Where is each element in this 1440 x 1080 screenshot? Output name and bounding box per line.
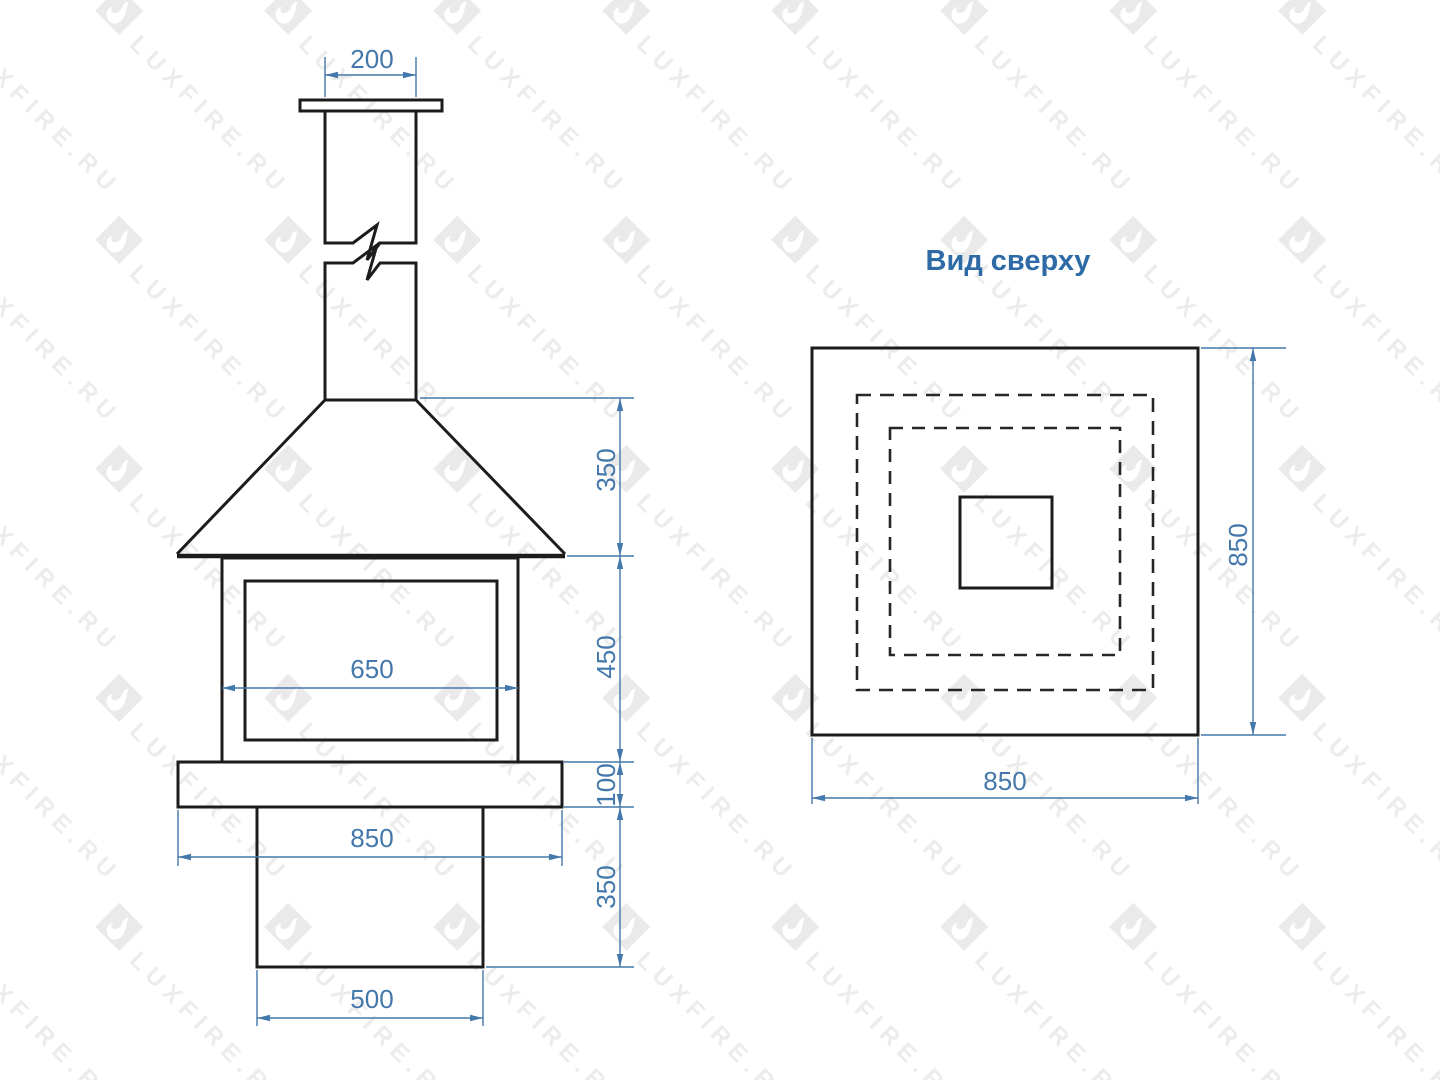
watermark-text: LUXFIRE.RU xyxy=(124,260,294,430)
flame-diamond-icon xyxy=(433,445,481,493)
watermark-text: LUXFIRE.RU xyxy=(0,260,126,430)
dimension-arrow xyxy=(617,749,623,762)
flame-diamond-icon xyxy=(433,903,481,951)
watermark-text: LUXFIRE.RU xyxy=(293,718,463,888)
watermark-tile: LUXFIRE.RU xyxy=(597,0,811,201)
flame-diamond-icon xyxy=(95,445,143,493)
watermark-text: LUXFIRE.RU xyxy=(462,489,632,659)
watermark-text: LUXFIRE.RU xyxy=(0,489,126,659)
watermark-tile: LUXFIRE.RU xyxy=(1273,445,1440,659)
watermark-text: LUXFIRE.RU xyxy=(969,31,1139,201)
watermark-text: LUXFIRE.RU xyxy=(1307,489,1440,659)
flame-diamond-icon xyxy=(1109,445,1157,493)
dim-hood-height: 350 xyxy=(591,448,621,491)
watermark-text: LUXFIRE.RU xyxy=(0,31,126,201)
dimension-arrow xyxy=(257,1015,270,1021)
dimension-arrow xyxy=(1185,795,1198,801)
watermark-text: LUXFIRE.RU xyxy=(969,260,1139,430)
watermark-tile: LUXFIRE.RU xyxy=(766,0,980,201)
watermark-tile: LUXFIRE.RU xyxy=(1273,216,1440,430)
dimension-arrow xyxy=(505,685,518,691)
watermark-tile: LUXFIRE.RU xyxy=(1273,674,1440,888)
watermark-text: LUXFIRE.RU xyxy=(1307,718,1440,888)
watermark-text: LUXFIRE.RU xyxy=(631,489,801,659)
top-view-title: Вид сверху xyxy=(926,245,1091,277)
dimension-arrow xyxy=(617,556,623,569)
dimension-arrow xyxy=(549,854,562,860)
dim-cap-width: 200 xyxy=(350,44,393,74)
flame-diamond-icon xyxy=(433,674,481,722)
dimension-arrow xyxy=(617,543,623,556)
watermark-text: LUXFIRE.RU xyxy=(800,260,970,430)
flame-diamond-icon xyxy=(264,445,312,493)
dimension-arrow xyxy=(812,795,825,801)
watermark-text: LUXFIRE.RU xyxy=(462,31,632,201)
flame-diamond-icon xyxy=(602,674,650,722)
flame-diamond-icon xyxy=(940,903,988,951)
watermark-text: LUXFIRE.RU xyxy=(124,718,294,888)
watermark-text: LUXFIRE.RU xyxy=(1138,31,1308,201)
dimension-arrow xyxy=(403,72,416,78)
watermark-tile: LUXFIRE.RU xyxy=(90,0,304,201)
dim-base-width: 850 xyxy=(350,823,393,853)
watermark-text: LUXFIRE.RU xyxy=(1307,260,1440,430)
watermark-text: LUXFIRE.RU xyxy=(1307,31,1440,201)
flame-diamond-icon xyxy=(602,903,650,951)
watermark-text: LUXFIRE.RU xyxy=(631,718,801,888)
dim-firebox-width: 650 xyxy=(350,654,393,684)
flame-diamond-icon xyxy=(1278,445,1326,493)
dimension-arrow xyxy=(470,1015,483,1021)
flame-diamond-icon xyxy=(1278,903,1326,951)
watermark-text: LUXFIRE.RU xyxy=(1138,260,1308,430)
watermark-tile: LUXFIRE.RU xyxy=(1104,0,1318,201)
flame-diamond-icon xyxy=(940,674,988,722)
dimension-arrow xyxy=(178,854,191,860)
flame-diamond-icon xyxy=(95,216,143,264)
watermark-text: LUXFIRE.RU xyxy=(969,489,1139,659)
watermark-text: LUXFIRE.RU xyxy=(462,260,632,430)
watermark-text: LUXFIRE.RU xyxy=(631,947,801,1080)
dimension-arrow xyxy=(617,954,623,967)
dim-firebox-height: 450 xyxy=(591,635,621,678)
flame-diamond-icon xyxy=(1278,674,1326,722)
dim-pedestal-width: 500 xyxy=(350,984,393,1014)
flame-diamond-icon xyxy=(602,216,650,264)
watermark-tile: LUXFIRE.RU xyxy=(935,0,1149,201)
watermark-text: LUXFIRE.RU xyxy=(1138,947,1308,1080)
watermark-text: LUXFIRE.RU xyxy=(293,489,463,659)
watermark-text: LUXFIRE.RU xyxy=(800,947,970,1080)
dim-pedestal-height: 350 xyxy=(591,865,621,908)
flame-diamond-icon xyxy=(1109,216,1157,264)
flame-diamond-icon xyxy=(264,674,312,722)
flame-diamond-icon xyxy=(771,903,819,951)
watermark-text: LUXFIRE.RU xyxy=(631,31,801,201)
watermark-text: LUXFIRE.RU xyxy=(0,947,126,1080)
flame-diamond-icon xyxy=(1278,216,1326,264)
dim-base-height: 100 xyxy=(591,763,621,806)
dimension-arrow xyxy=(222,685,235,691)
watermark-text: LUXFIRE.RU xyxy=(124,31,294,201)
flame-diamond-icon xyxy=(264,903,312,951)
watermark-text: LUXFIRE.RU xyxy=(0,718,126,888)
dimension-arrow xyxy=(1250,722,1256,735)
flame-diamond-icon xyxy=(95,903,143,951)
watermark-text: LUXFIRE.RU xyxy=(1138,489,1308,659)
flame-diamond-icon xyxy=(95,674,143,722)
watermark-text: LUXFIRE.RU xyxy=(969,718,1139,888)
drawing-canvas: LUXFIRE.RULUXFIRE.RULUXFIRE.RULUXFIRE.RU… xyxy=(0,0,1440,1080)
watermark-text: LUXFIRE.RU xyxy=(800,489,970,659)
flame-diamond-icon xyxy=(433,216,481,264)
watermark-text: LUXFIRE.RU xyxy=(631,260,801,430)
watermark-tile: LUXFIRE.RU xyxy=(428,0,642,201)
watermark-text: LUXFIRE.RU xyxy=(124,489,294,659)
flame-diamond-icon xyxy=(940,445,988,493)
watermark-text: LUXFIRE.RU xyxy=(1307,947,1440,1080)
dim-topview-width: 850 xyxy=(983,766,1026,796)
watermark-tile: LUXFIRE.RU xyxy=(1273,903,1440,1080)
watermark-text: LUXFIRE.RU xyxy=(800,31,970,201)
flame-diamond-icon xyxy=(1109,674,1157,722)
dimension-arrow xyxy=(617,807,623,820)
flame-diamond-icon xyxy=(771,216,819,264)
watermark-text: LUXFIRE.RU xyxy=(969,947,1139,1080)
watermark-text: LUXFIRE.RU xyxy=(1138,718,1308,888)
dim-topview-height: 850 xyxy=(1223,523,1253,566)
flame-diamond-icon xyxy=(1109,903,1157,951)
watermark-text: LUXFIRE.RU xyxy=(800,718,970,888)
flame-diamond-icon xyxy=(264,216,312,264)
